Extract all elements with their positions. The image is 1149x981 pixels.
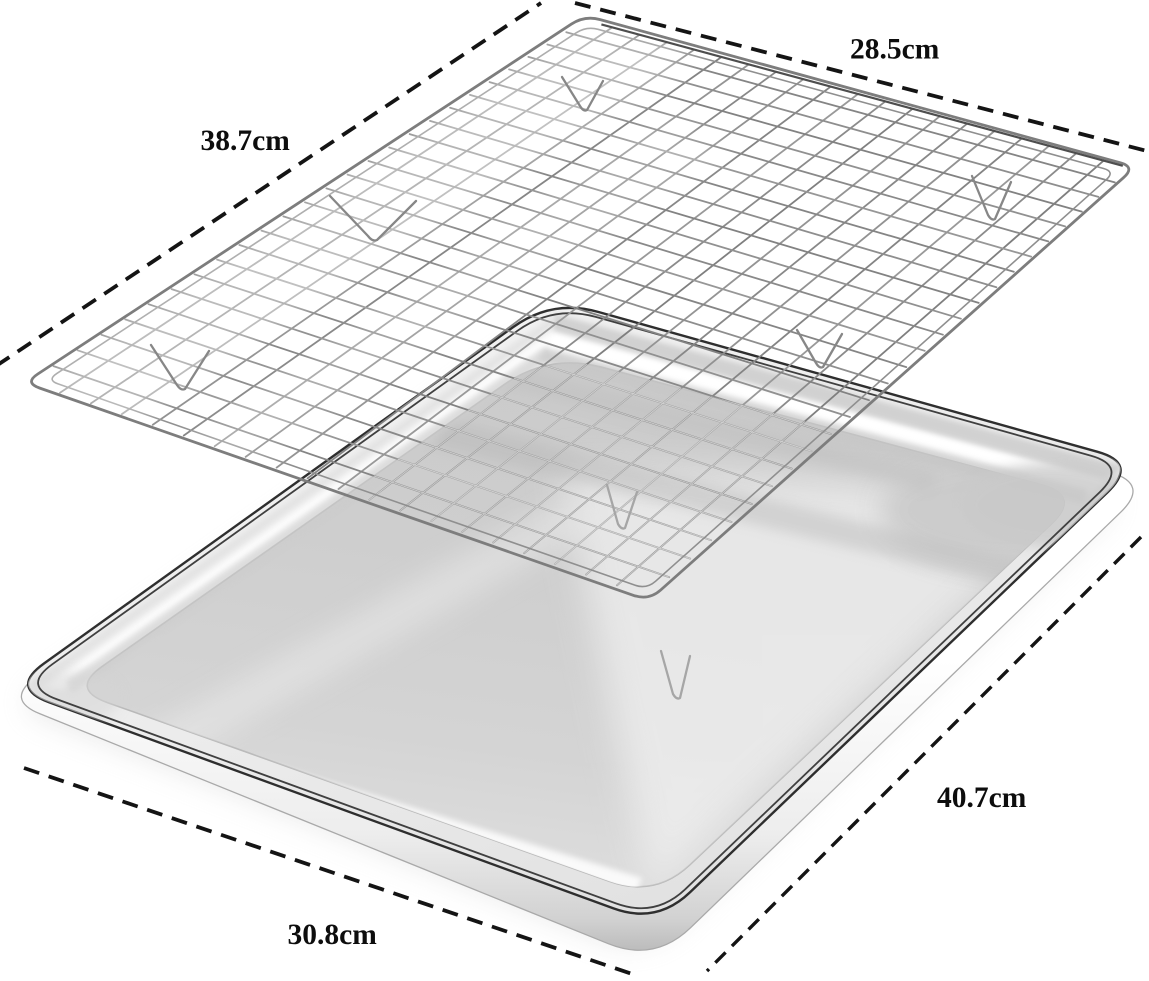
svg-text:30.8cm: 30.8cm <box>288 919 378 951</box>
svg-text:40.7cm: 40.7cm <box>937 782 1027 814</box>
svg-text:28.5cm: 28.5cm <box>850 34 940 66</box>
svg-text:38.7cm: 38.7cm <box>201 125 291 157</box>
